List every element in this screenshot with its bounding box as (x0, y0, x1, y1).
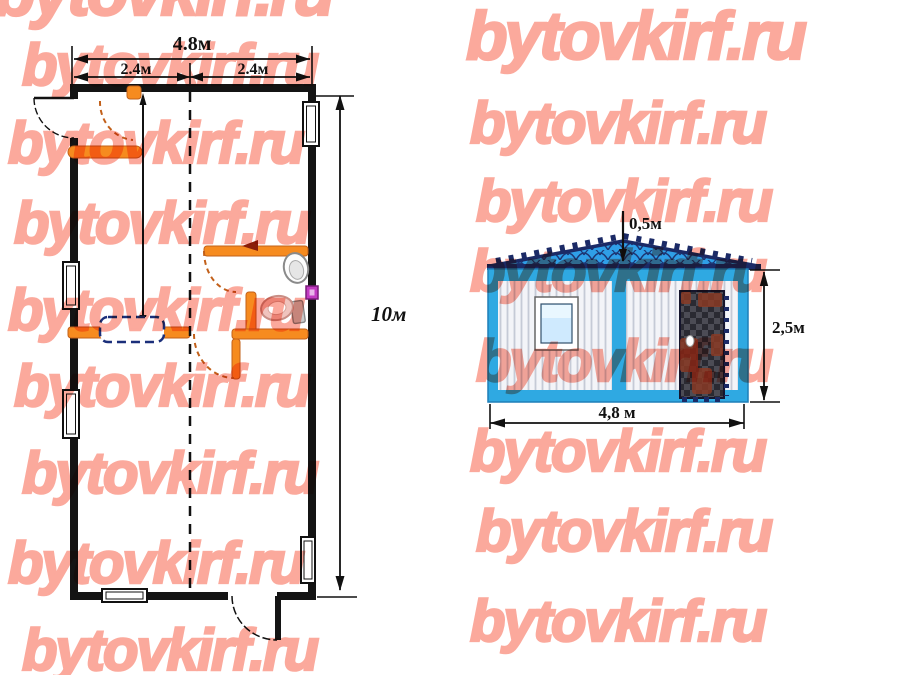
technical-drawing: 4.8м 2.4м 2.4м 10м (0, 0, 900, 675)
plan-partitions (68, 146, 308, 379)
plan-width-label: 4.8м (173, 33, 212, 55)
sink-icon (259, 293, 305, 323)
elevation-door (680, 291, 727, 400)
vestibule-measure-line (140, 93, 147, 327)
screenshot-canvas: 4.8м 2.4м 2.4м 10м (0, 0, 900, 675)
window-right-bottom (301, 537, 315, 583)
elevation-view: 0,5м (487, 211, 805, 429)
plan-dim-length: 10м (336, 95, 407, 591)
elev-height-label: 2,5м (772, 318, 805, 337)
partition-bath-left (246, 292, 256, 334)
bath-door-arc-upper (204, 251, 236, 292)
partition-vestibule (68, 146, 142, 158)
elev-dim-height: 2,5м (750, 270, 805, 402)
elev-width-label: 4,8 м (598, 403, 636, 422)
elev-dim-width: 4,8 м (490, 403, 744, 429)
bath-lower-door-leaf (232, 339, 240, 379)
plan-width-right-label: 2.4м (238, 61, 269, 78)
window-right-top (303, 102, 319, 146)
plan-dim-width: 4.8м (74, 33, 310, 64)
entry-door-leaf (275, 596, 281, 640)
entry-door-arc (232, 596, 277, 640)
elevation-window (535, 297, 578, 350)
window-bottom (102, 589, 147, 602)
bath-door-arc-lower (194, 334, 234, 378)
window-left-1 (63, 262, 79, 309)
floor-plan: 4.8м 2.4м 2.4м 10м (34, 33, 406, 640)
window-left-2 (63, 390, 79, 438)
vestibule-door (100, 86, 141, 140)
partition-bath-bottom (232, 329, 308, 339)
furniture-dashed-box (100, 317, 164, 342)
plan-length-label: 10м (371, 302, 406, 326)
exterior-door-top (34, 98, 74, 138)
door-handle-icon (686, 336, 694, 347)
cabin-body (488, 269, 748, 402)
roof-height-label: 0,5м (629, 214, 662, 233)
plan-width-left-label: 2.4м (121, 61, 152, 78)
wall-switch-icon (306, 286, 318, 299)
plan-walls (70, 84, 316, 640)
plan-dim-halves: 2.4м 2.4м (74, 61, 310, 82)
